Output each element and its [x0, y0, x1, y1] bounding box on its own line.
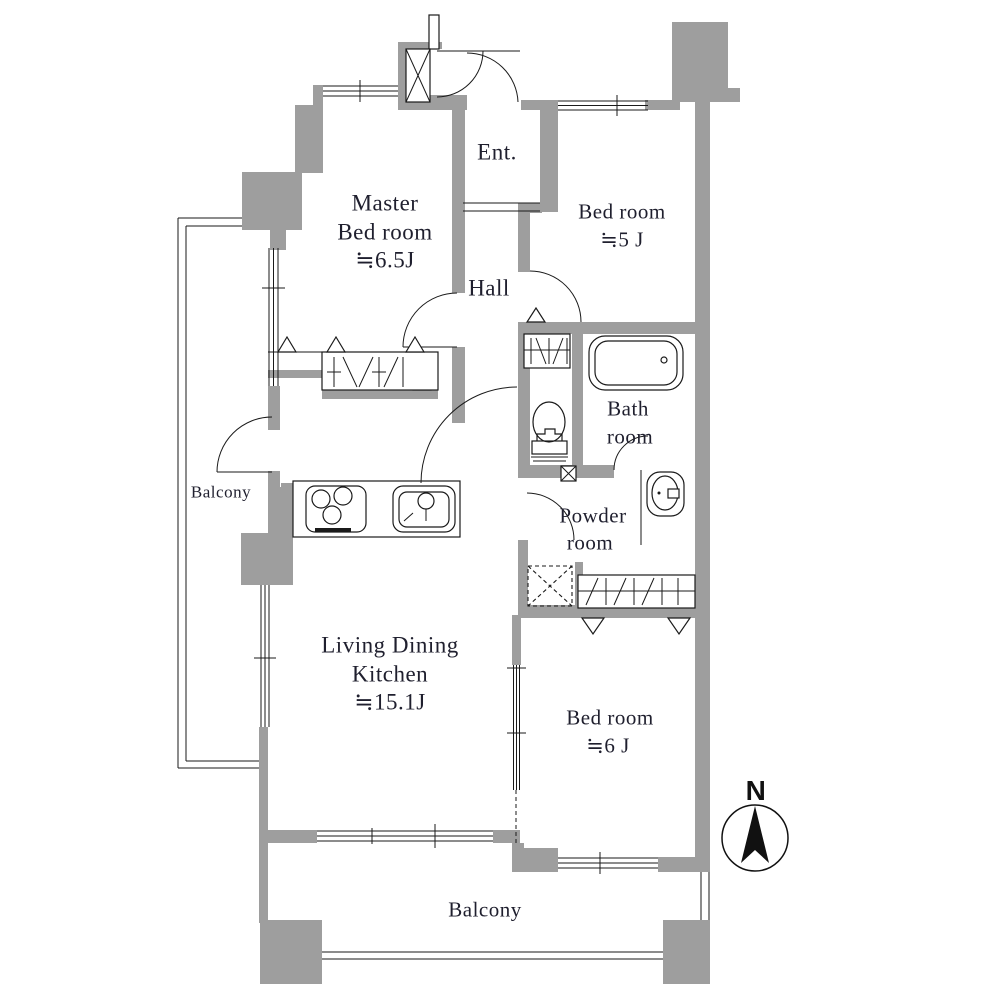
pillar-bottom-left [260, 920, 322, 984]
compass-icon [722, 805, 788, 871]
pillar-top-right [672, 22, 728, 92]
washbasin-icon [641, 470, 684, 545]
room-label-bedroom-6j-area: ≒6 J [586, 736, 630, 757]
room-label-ldk-area: ≒15.1J [354, 691, 425, 714]
floor-plan: Master Bed room ≒6.5J Bed room ≒5 J Ent.… [0, 0, 1000, 1000]
duct-box-icon-2 [561, 466, 576, 481]
sliding-door-mark [582, 618, 604, 634]
stove-icon [306, 486, 366, 532]
room-label-entrance: Ent. [477, 141, 517, 164]
bedroom6-closet [578, 575, 695, 634]
room-label-hall: Hall [468, 277, 510, 300]
kitchen-sink-icon [393, 486, 455, 532]
room-label-master-bedroom-line2: Bed room [337, 221, 432, 244]
bathtub-icon [589, 336, 683, 390]
folding-door-mark [327, 337, 345, 352]
room-label-master-bedroom-area: ≒6.5J [355, 249, 414, 272]
room-label-powder-line1: Powder [559, 506, 626, 527]
walls [241, 22, 740, 984]
sliding-door-mark [668, 618, 690, 634]
room-label-powder-line2: room [567, 533, 613, 554]
room-label-bedroom-5j-area: ≒5 J [600, 230, 644, 251]
folding-door-mark [406, 337, 424, 352]
room-label-ldk-line1: Living Dining [321, 634, 458, 657]
pillar-mid-left [241, 533, 293, 585]
toilet-icon [531, 402, 568, 461]
folding-door-mark [527, 308, 545, 322]
compass-north-label: N [746, 777, 767, 805]
pipe-shaft-icon [406, 15, 439, 102]
room-label-bedroom-6j-name: Bed room [566, 708, 653, 729]
linen-closet [524, 308, 570, 368]
room-label-bathroom-line1: Bath [607, 399, 649, 420]
room-label-ldk-line2: Kitchen [352, 663, 428, 686]
room-label-bathroom-line2: room [607, 427, 653, 448]
room-label-bedroom-5j-name: Bed room [578, 202, 665, 223]
label-balcony-bottom: Balcony [448, 900, 521, 921]
washing-machine-icon [528, 566, 572, 606]
pillar-bottom-right [663, 920, 710, 984]
room-label-master-bedroom-line1: Master [352, 192, 419, 215]
master-closet [268, 337, 438, 390]
folding-door-mark [278, 337, 296, 352]
pillar-top-left [242, 172, 302, 230]
label-balcony-left: Balcony [191, 484, 251, 501]
